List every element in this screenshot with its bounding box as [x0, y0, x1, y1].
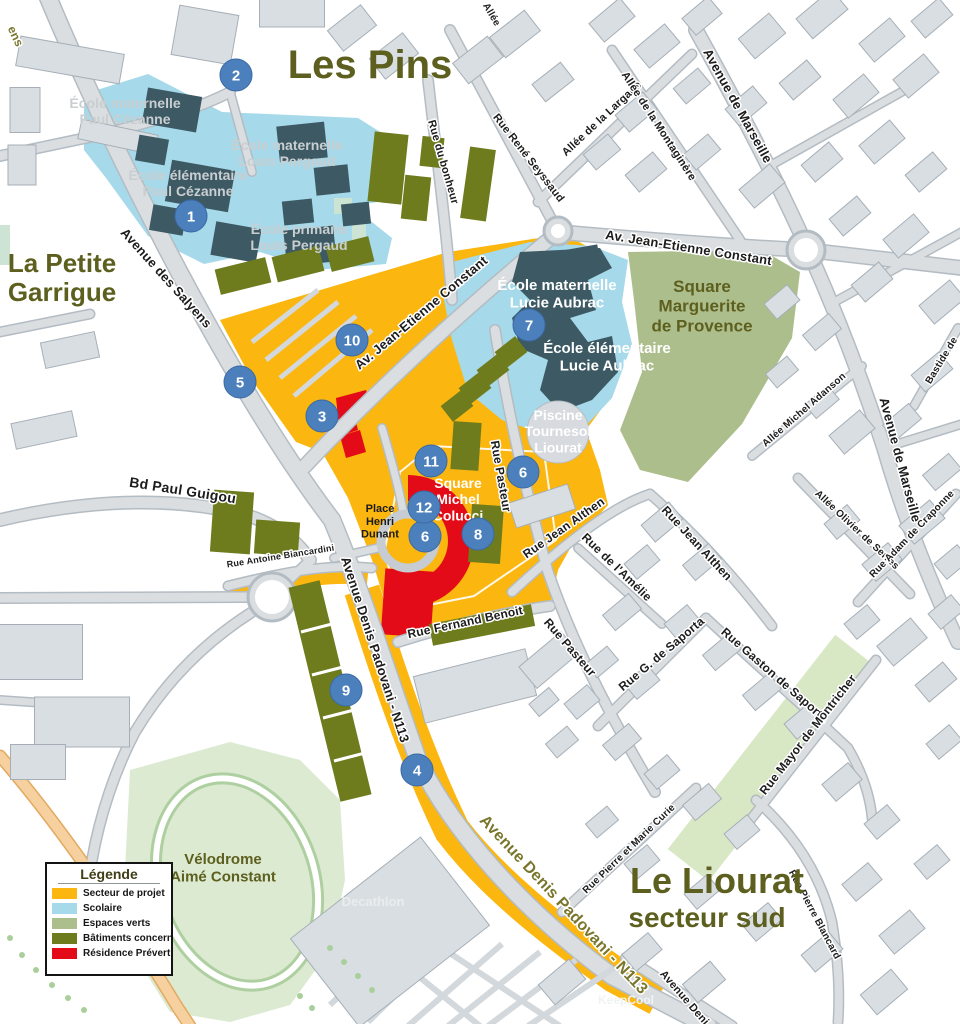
district-label-la-petite-garrigue: La PetiteGarrigue [8, 248, 116, 307]
place-label-piscine-tournesol-liourat: PiscineTournesolLiourat [525, 407, 592, 455]
place-label-ecole-maternelle-paul-cezanne: École maternellePaul Cézanne [69, 95, 180, 127]
map-marker-11[interactable]: 11 [415, 445, 447, 477]
marker-number: 8 [474, 526, 482, 543]
map-marker-8[interactable]: 8 [462, 518, 494, 550]
map-marker-3[interactable]: 3 [306, 400, 338, 432]
map-marker-1[interactable]: 1 [175, 200, 207, 232]
street-label-rue-rene-seyssaud: Rue René Seyssaud [490, 112, 566, 205]
legend-label: Résidence Prévert à dém [83, 948, 173, 959]
place-label-square-michel-colucci: SquareMichelColucci [433, 475, 484, 523]
map-marker-9[interactable]: 9 [330, 674, 362, 706]
map-marker-5[interactable]: 5 [224, 366, 256, 398]
legend-item-secteur-de-projet: Secteur de projet [52, 888, 166, 899]
map-marker-4[interactable]: 4 [401, 754, 433, 786]
place-label-ecole-maternelle-lucie-aubrac: École maternelleLucie Aubrac [497, 277, 616, 311]
place-label-ecole-elementaire-lucie-aubrac: École élémentaireLucie Aubrac [543, 340, 671, 374]
marker-number: 7 [525, 317, 533, 334]
marker-number: 12 [416, 499, 433, 516]
legend-item-residence-prevert-a-dem: Résidence Prévert à dém [52, 948, 166, 959]
legend-swatch [52, 903, 77, 914]
legend-item-espaces-verts: Espaces verts [52, 918, 166, 929]
place-label-decathlon: Decathlon [342, 894, 405, 909]
marker-number: 3 [318, 408, 326, 425]
marker-number: 5 [236, 374, 244, 391]
legend-label: Espaces verts [83, 918, 150, 929]
legend-swatch [52, 933, 77, 944]
marker-number: 11 [423, 453, 439, 470]
city-map: Avenue des SalyensensAv. Jean-Etienne Co… [0, 0, 960, 1024]
district-label-les-pins: Les Pins [288, 43, 453, 87]
district-label-secteur-sud: secteur sud [628, 902, 785, 933]
place-label-velodrome-aime-constant: VélodromeAimé Constant [170, 851, 276, 885]
marker-number: 1 [187, 208, 195, 225]
legend-swatch [52, 918, 77, 929]
legend-title: Légende [52, 866, 166, 882]
map-marker-12[interactable]: 12 [408, 491, 440, 523]
marker-number: 6 [421, 528, 429, 545]
place-label-ecole-primaire-louis-pergaud: École primaireLouis Pergaud [250, 221, 347, 253]
legend-swatch [52, 948, 77, 959]
marker-number: 10 [344, 332, 361, 349]
legend-label: Scolaire [83, 903, 122, 914]
map-marker-6[interactable]: 6 [507, 456, 539, 488]
legend-item-scolaire: Scolaire [52, 903, 166, 914]
marker-number: 2 [232, 67, 240, 84]
legend-item-batiments-concernes: Bâtiments concernés [52, 933, 166, 944]
map-marker-2[interactable]: 2 [220, 59, 252, 91]
place-label-ecole-maternelle-louis-pergaud: École maternelleLouis Pergaud [231, 137, 342, 169]
map-marker-6[interactable]: 6 [409, 520, 441, 552]
legend-label: Bâtiments concernés [83, 933, 173, 944]
place-label-keepcool: KeepCool [598, 993, 654, 1007]
place-label-place-henri-dunant: PlaceHenriDunant [361, 503, 399, 541]
marker-number: 6 [519, 464, 527, 481]
map-marker-7[interactable]: 7 [513, 309, 545, 341]
legend-divider [58, 883, 160, 884]
street-label-allee: Allée [480, 1, 502, 28]
legend-swatch [52, 888, 77, 899]
marker-number: 9 [342, 682, 350, 699]
district-label-le-liourat: Le Liourat [630, 860, 804, 901]
map-marker-10[interactable]: 10 [336, 324, 368, 356]
map-legend: Légende Secteur de projetScolaireEspaces… [45, 862, 173, 976]
marker-number: 4 [413, 762, 422, 779]
place-label-ecole-elementaire-paul-cezanne: École élémentairePaul Cézanne [128, 167, 247, 199]
legend-label: Secteur de projet [83, 888, 165, 899]
